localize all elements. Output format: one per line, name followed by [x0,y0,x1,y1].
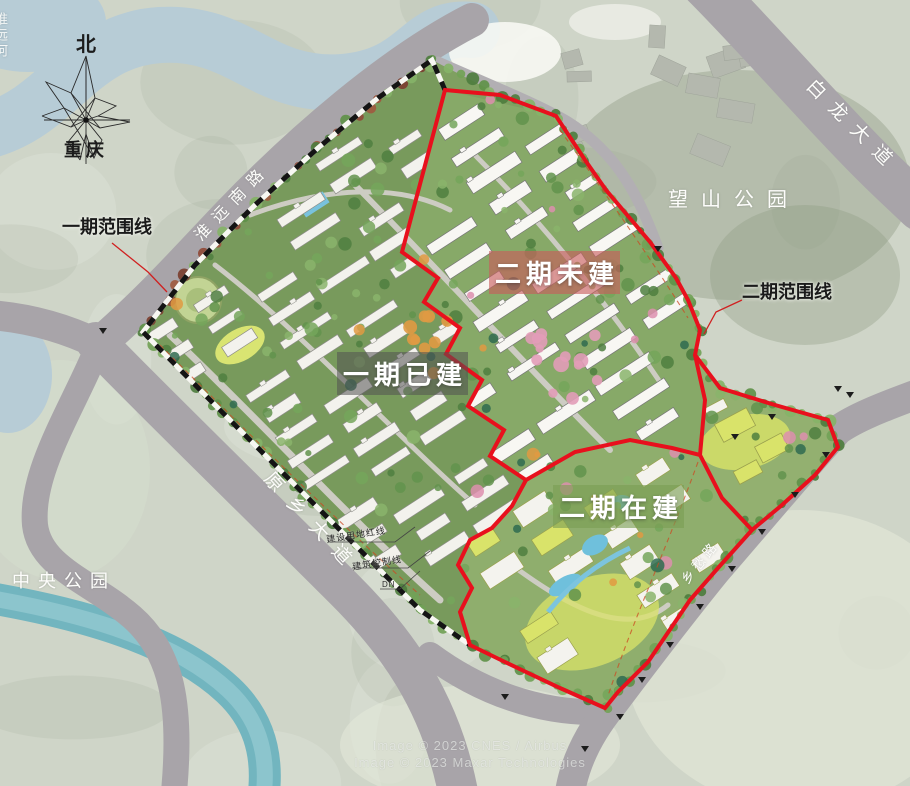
site-plan-page: { "compass": { "north": "北", "city": "重庆… [0,0,910,786]
zone-badge-phase2-under-construction: 二期在建 [553,485,684,528]
watermark-line2: Image © 2023 Maxar Technologies [255,755,685,770]
wangshan-park-label: 望山公园 [668,190,800,210]
watermark-line1: Image © 2023 CNES / Airbus [255,738,685,753]
phase1-boundary-label: 一期范围线 [62,218,152,236]
annotation-dn: DN [382,580,396,589]
river-label-huaiyuan: 淮远河 [0,12,7,60]
zone-badge-phase1-built: 一期已建 [337,352,468,395]
zone-badge-phase2-unbuilt: 二期未建 [489,251,620,294]
phase2-boundary-label: 二期范围线 [742,283,832,301]
imagery-watermark: Image © 2023 CNES / Airbus Image © 2023 … [255,738,685,772]
central-park-label: 中央公园 [12,572,116,590]
compass-north-label: 北 [76,28,96,57]
compass-city-label: 重庆 [64,136,108,162]
